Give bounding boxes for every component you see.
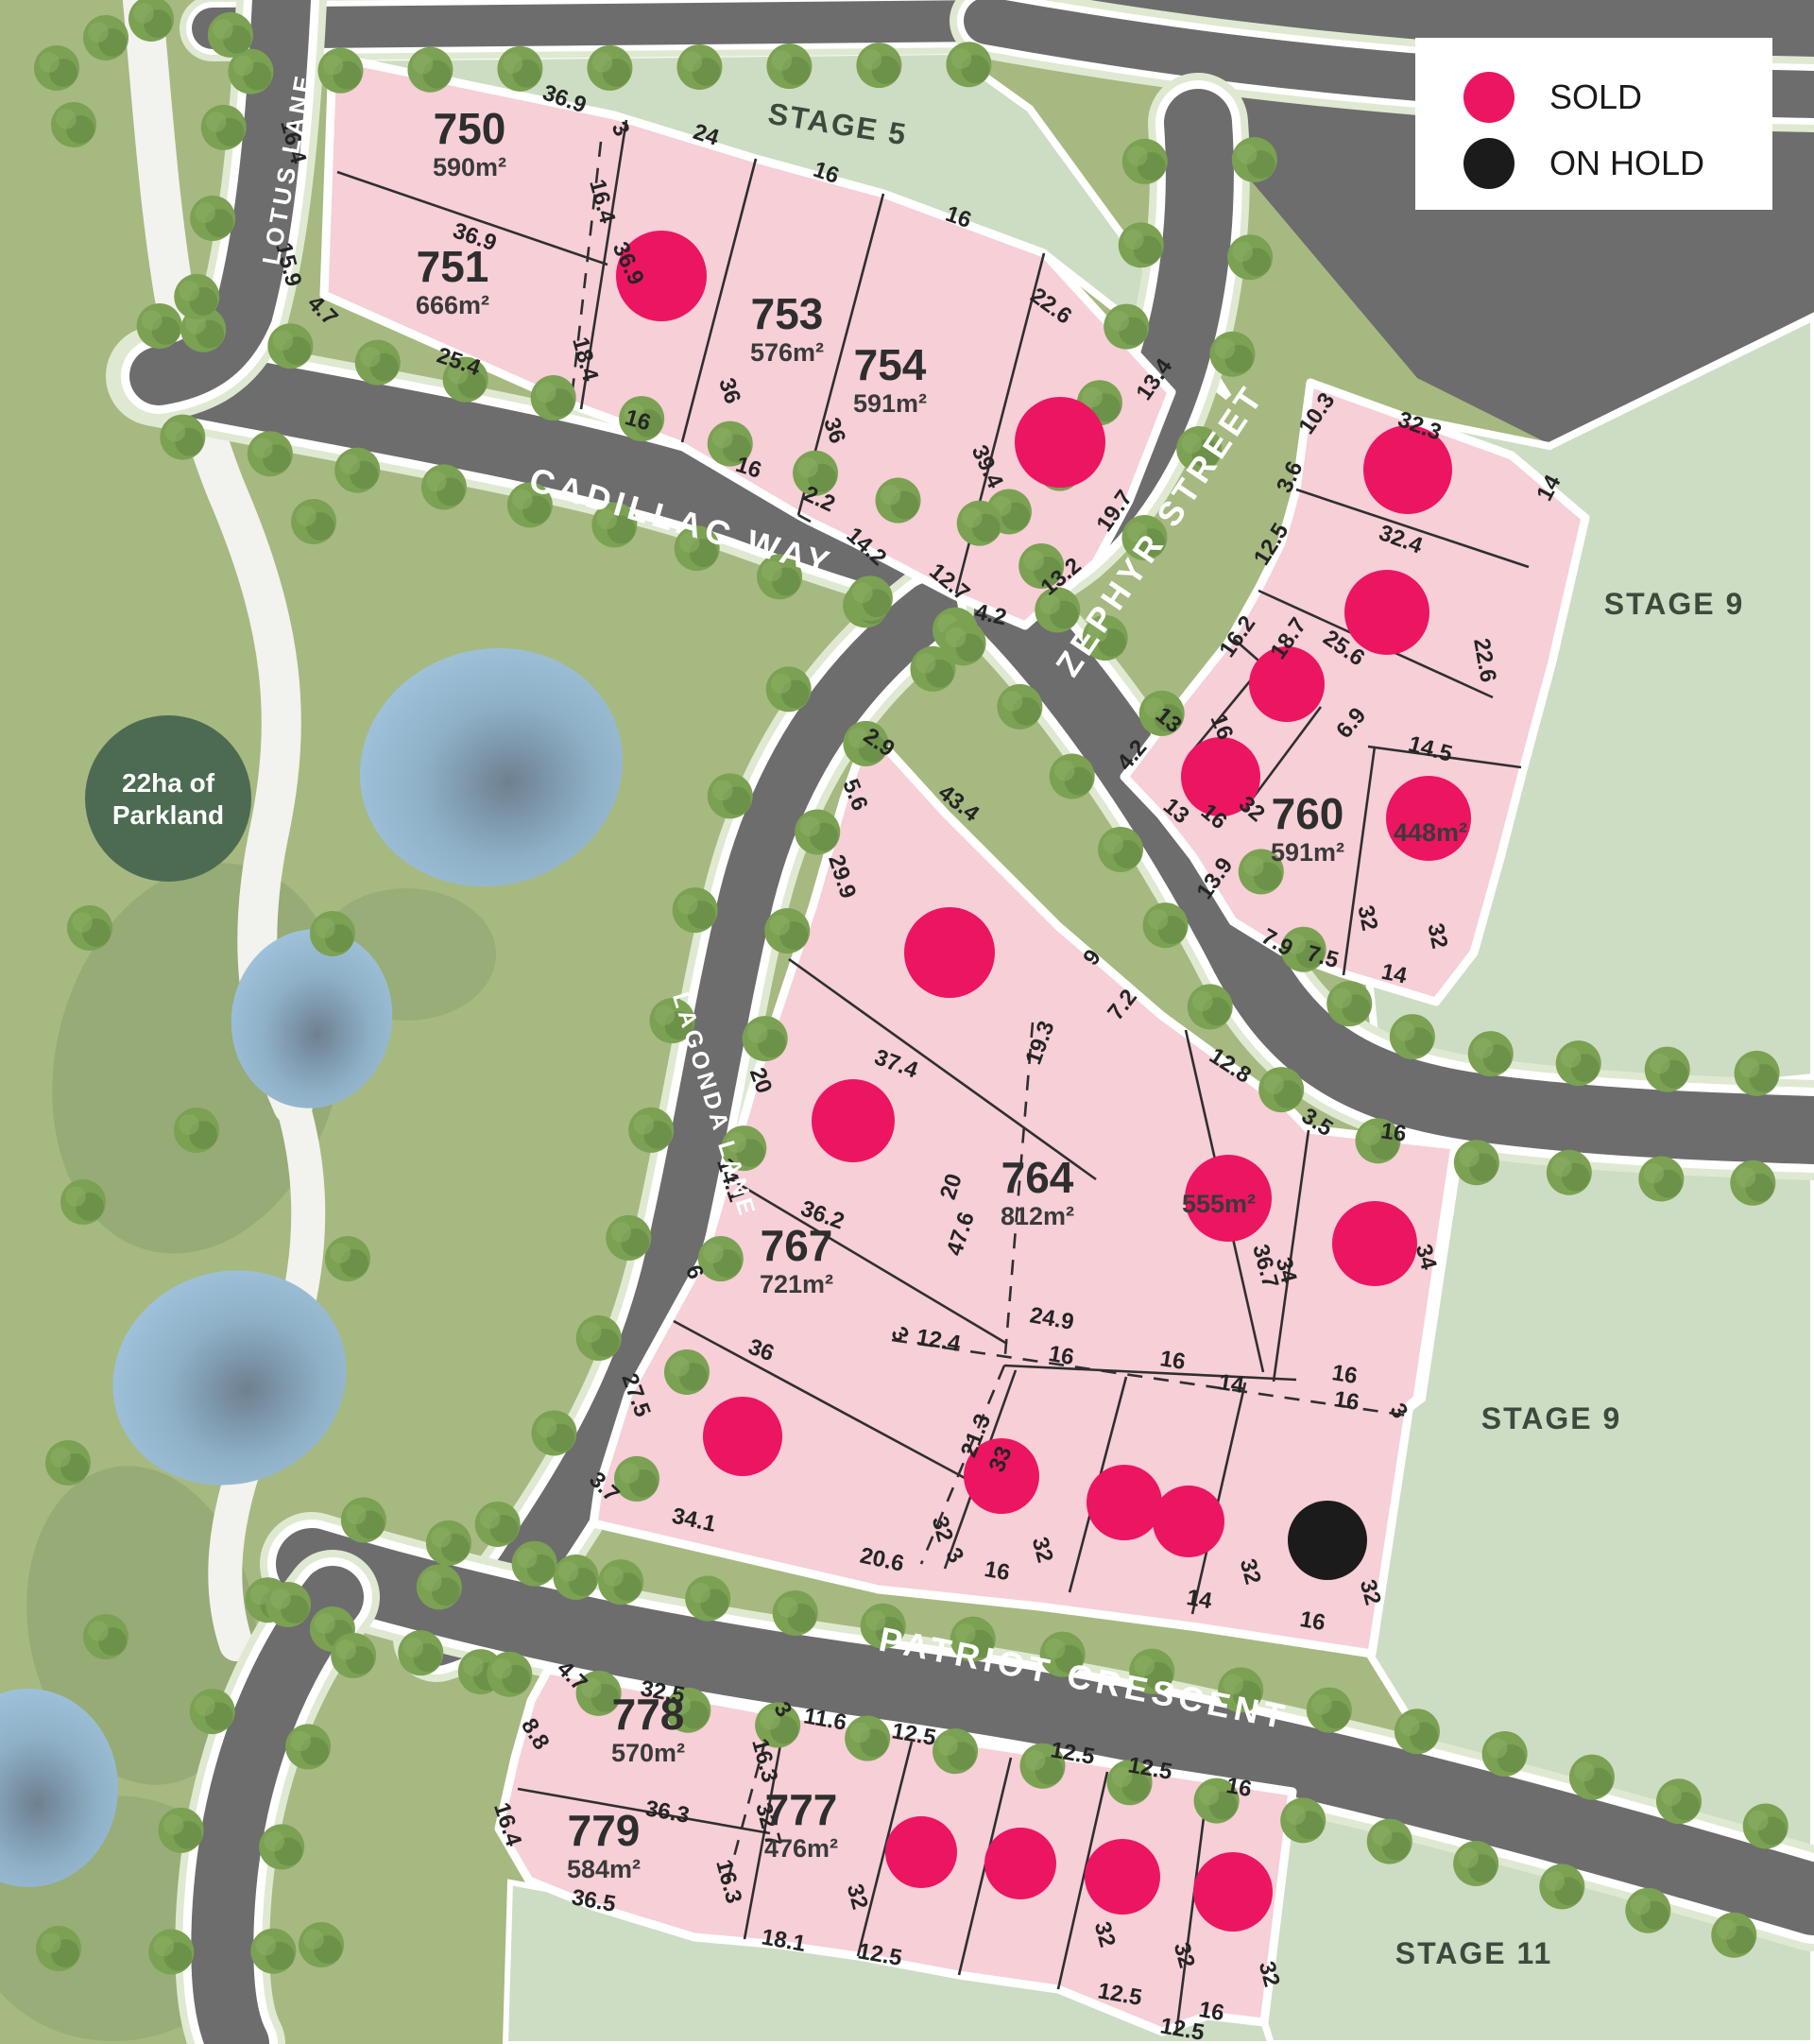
tree-icon: [421, 464, 467, 509]
tree-icon: [1232, 137, 1277, 182]
tree-icon: [248, 431, 293, 476]
tree-icon: [1227, 234, 1273, 280]
tree-icon: [1280, 1797, 1326, 1843]
lot-number[interactable]: 777: [765, 1785, 838, 1834]
tree-icon: [285, 1724, 331, 1769]
tree-icon: [190, 196, 235, 241]
tree-icon: [34, 45, 79, 91]
tree-icon: [60, 1179, 106, 1225]
tree-icon: [512, 1541, 557, 1587]
tree-icon: [45, 1440, 91, 1486]
tree-icon: [299, 1922, 344, 1967]
dimension-label: 16: [1158, 1346, 1188, 1375]
lot-number[interactable]: 767: [761, 1221, 833, 1270]
dimension-label: 16: [1047, 1341, 1076, 1370]
tree-icon: [614, 1456, 659, 1502]
dimension-label: 16: [1379, 1118, 1408, 1146]
tree-icon: [83, 15, 128, 60]
sold-marker[interactable]: [1015, 397, 1105, 488]
stage-label: STAGE 9: [1604, 587, 1745, 621]
tree-icon: [708, 773, 753, 818]
lot-number[interactable]: 760: [1272, 789, 1344, 838]
lot-area: 476m²: [764, 1834, 838, 1863]
tree-icon: [1482, 1731, 1528, 1777]
road-surface: [213, 21, 987, 28]
tree-icon: [685, 1576, 730, 1622]
tree-icon: [1569, 1755, 1615, 1800]
tree-icon: [36, 1926, 81, 1971]
tree-icon: [1395, 1709, 1440, 1754]
tree-icon: [1390, 1014, 1435, 1059]
tree-icon: [190, 1689, 235, 1734]
tree-icon: [265, 1582, 311, 1627]
tree-icon: [1556, 1040, 1601, 1086]
tree-icon: [795, 809, 840, 854]
tree-icon: [1188, 984, 1233, 1029]
lot-area: 591m²: [1271, 838, 1344, 867]
tree-icon: [1547, 1150, 1592, 1195]
dimension-label: 16: [983, 1556, 1012, 1586]
tree-icon: [1326, 981, 1372, 1026]
tree-icon: [355, 340, 401, 386]
tree-icon: [598, 1559, 643, 1605]
tree-icon: [208, 12, 253, 58]
tree-icon: [174, 274, 219, 319]
dimension-label: 14: [1217, 1369, 1246, 1399]
tree-icon: [331, 1633, 376, 1678]
sold-marker[interactable]: [1363, 425, 1452, 514]
sold-marker[interactable]: [904, 907, 995, 998]
dimension-label: 16: [1224, 1773, 1254, 1802]
tree-icon: [531, 375, 576, 421]
tree-icon: [1711, 1913, 1756, 1958]
tree-icon: [148, 1929, 194, 1974]
lot-number[interactable]: 779: [568, 1806, 641, 1855]
on-hold-legend-label: ON HOLD: [1549, 144, 1704, 182]
tree-icon: [201, 105, 247, 150]
tree-icon: [417, 1564, 462, 1609]
lot-area: 576m²: [750, 338, 824, 367]
lot-area: 448m²: [1394, 818, 1467, 847]
tree-icon: [259, 1824, 304, 1869]
sold-marker[interactable]: [812, 1079, 895, 1162]
tree-icon: [673, 887, 718, 933]
stage-label: STAGE 9: [1481, 1401, 1622, 1435]
tree-icon: [1735, 1051, 1780, 1096]
dimension-label: 16: [1298, 1606, 1327, 1636]
tree-icon: [766, 666, 812, 712]
tree-icon: [1638, 1156, 1684, 1201]
tree-icon: [773, 1590, 818, 1636]
tree-icon: [475, 1502, 521, 1547]
tree-icon: [576, 1315, 622, 1361]
estate-masterplan: 22ha of Parkland 16.436.9316.415.936.94.…: [0, 0, 1814, 2044]
sold-marker[interactable]: [1332, 1201, 1417, 1286]
tree-icon: [1050, 753, 1095, 799]
tree-icon: [664, 1349, 710, 1395]
tree-icon: [160, 415, 205, 460]
tree-icon: [532, 1410, 577, 1455]
dimension-label: 32: [1352, 903, 1382, 934]
tree-icon: [910, 646, 955, 692]
tree-icon: [159, 1808, 204, 1853]
dimension-label: 16: [1197, 1997, 1226, 2026]
tree-icon: [743, 1016, 788, 1061]
dimension-label: 14: [1185, 1585, 1215, 1614]
parkland-badge-line2: Parkland: [112, 800, 224, 830]
lot-area: 721m²: [760, 1270, 833, 1298]
dimension-label: 16: [1332, 1386, 1361, 1416]
sold-marker[interactable]: [1085, 1839, 1160, 1915]
tree-icon: [764, 908, 810, 953]
sold-marker[interactable]: [1193, 1852, 1273, 1932]
tree-icon: [587, 45, 632, 91]
tree-icon: [174, 1108, 219, 1153]
sold-marker[interactable]: [885, 1816, 957, 1888]
tree-icon: [291, 499, 336, 544]
sold-marker[interactable]: [703, 1397, 782, 1476]
sold-legend-label: SOLD: [1549, 77, 1642, 116]
tree-icon: [933, 1728, 978, 1774]
tree-icon: [856, 43, 901, 88]
sold-legend-icon: [1463, 72, 1515, 123]
lot-number[interactable]: 764: [1001, 1153, 1074, 1202]
tree-icon: [1143, 902, 1189, 948]
tree-icon: [1454, 1140, 1499, 1185]
tree-icon: [1743, 1803, 1788, 1848]
lot-area: 812m²: [1001, 1202, 1074, 1230]
tree-icon: [325, 1236, 370, 1281]
tree-icon: [1367, 1819, 1412, 1864]
tree-icon: [1656, 1778, 1702, 1824]
lot-area: 555m²: [1182, 1190, 1256, 1218]
tree-icon: [51, 102, 96, 147]
lot-number[interactable]: 750: [434, 104, 506, 153]
tree-icon: [67, 905, 112, 951]
on-hold-marker[interactable]: [1288, 1501, 1367, 1580]
tree-icon: [606, 1215, 651, 1261]
tree-icon: [628, 1108, 674, 1153]
tree-icon: [407, 47, 453, 93]
lot-area: 570m²: [611, 1739, 685, 1767]
lot-area: 584m²: [567, 1855, 641, 1883]
lot-number[interactable]: 778: [612, 1690, 685, 1739]
tree-icon: [1209, 332, 1255, 377]
lot-area: 590m²: [433, 153, 506, 181]
legend: SOLD ON HOLD: [1415, 38, 1772, 210]
tree-icon: [1122, 139, 1168, 184]
tree-icon: [426, 1520, 471, 1566]
tree-icon: [1307, 1688, 1352, 1733]
tree-icon: [1258, 1067, 1304, 1112]
tree-icon: [1468, 1031, 1514, 1076]
legend-box: [1415, 38, 1772, 210]
tree-icon: [267, 323, 313, 369]
tree-icon: [317, 48, 363, 94]
masterplan-svg: 22ha of Parkland 16.436.9316.415.936.94.…: [0, 0, 1814, 2044]
tree-icon: [946, 42, 991, 87]
sold-marker[interactable]: [1087, 1465, 1162, 1540]
tree-icon: [1645, 1047, 1690, 1092]
tree-icon: [137, 303, 182, 349]
tree-icon: [876, 478, 921, 524]
dimension-label: 32: [1422, 921, 1452, 952]
sold-marker[interactable]: [1153, 1486, 1224, 1557]
tree-icon: [845, 1716, 890, 1761]
tree-icon: [1453, 1841, 1498, 1886]
tree-icon: [1539, 1864, 1584, 1909]
parkland-badge-line1: 22ha of: [122, 768, 215, 798]
sold-marker[interactable]: [984, 1828, 1056, 1899]
tree-icon: [847, 575, 893, 621]
tree-icon: [554, 1554, 599, 1600]
stage-label: STAGE 11: [1395, 1936, 1553, 1970]
tree-icon: [398, 1630, 443, 1675]
tree-icon: [1119, 222, 1164, 267]
parkland-badge: [85, 715, 251, 882]
tree-icon: [676, 44, 722, 90]
tree-icon: [487, 1652, 532, 1697]
tree-icon: [334, 448, 380, 493]
tree-icon: [250, 1929, 296, 1974]
lot-number[interactable]: 754: [854, 340, 927, 389]
lot-number[interactable]: 753: [751, 289, 824, 338]
on-hold-legend-icon: [1463, 138, 1515, 189]
tree-icon: [1730, 1160, 1775, 1206]
tree-icon: [310, 911, 355, 956]
tree-icon: [766, 43, 812, 89]
lot-area: 666m²: [416, 291, 489, 319]
lot-area: 591m²: [853, 389, 927, 418]
tree-icon: [1104, 304, 1149, 350]
dimension-label: 16: [1330, 1360, 1360, 1389]
tree-icon: [341, 1498, 386, 1543]
lot-number[interactable]: 751: [417, 242, 489, 291]
tree-icon: [83, 1614, 128, 1659]
tree-icon: [957, 501, 1002, 546]
tree-icon: [1098, 827, 1143, 872]
tree-icon: [497, 46, 542, 92]
tree-icon: [1625, 1888, 1670, 1933]
tree-icon: [997, 684, 1042, 730]
